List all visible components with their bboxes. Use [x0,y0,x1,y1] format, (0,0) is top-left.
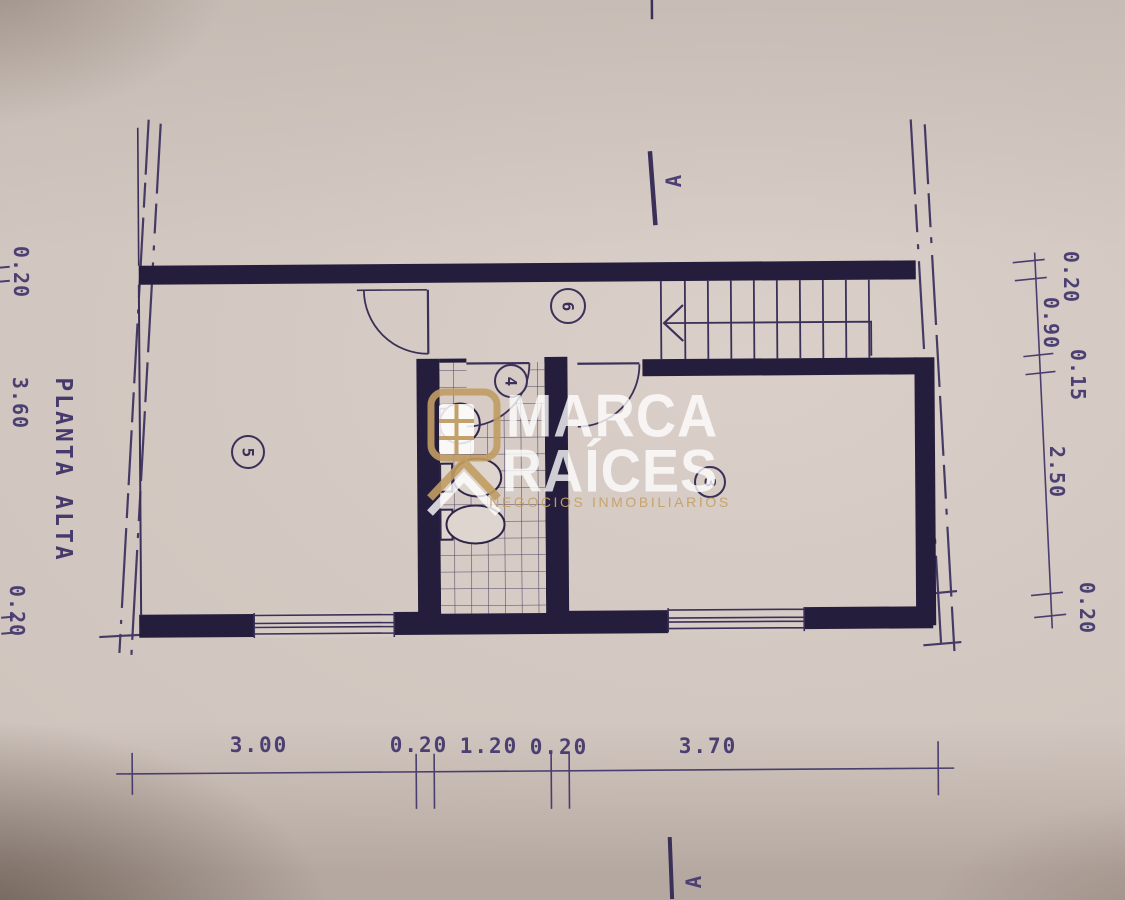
dim-bottom-5: 3.70 [679,734,738,758]
bathroom-right-wall [544,357,569,614]
staircase [661,280,872,359]
bottom-wall-right [804,606,933,629]
stair-bottom-wall [642,357,916,376]
room-label-6: 6 [550,288,586,324]
left-dimension-ticks [0,267,14,634]
right-wall [914,357,936,625]
floor-title: PLANTA ALTA [50,377,76,562]
room-label-3: 3 [694,466,726,498]
dim-bottom-3: 1.20 [460,734,519,758]
dim-left-middle: 3.60 [8,377,32,429]
floor-plan-scan: PLANTA ALTA 0.20 3.60 0.20 0.20 0.90 0.1… [0,0,1125,900]
bidet-tank [440,464,452,492]
dim-bottom-4: 0.20 [530,735,589,759]
sink-icon [440,403,480,443]
room-label-5: 5 [231,435,265,469]
scanned-floor-plan-page: { "plan": { "floor_title": "PLANTA ALTA"… [0,0,1125,900]
dim-bottom-2: 0.20 [390,733,449,757]
dim-right-2: 0.90 [1039,297,1063,349]
dim-left-bottom: 0.20 [5,585,29,637]
stair-direction-line [664,322,871,357]
door-room5 [357,290,428,354]
dim-right-1: 0.20 [1059,251,1083,303]
door-room3 [577,363,639,426]
dim-right-4: 2.50 [1045,446,1069,498]
left-party-wall-break-lines [96,120,165,655]
window-room5 [254,612,394,638]
floor-plan-drawing [0,0,1125,900]
bidet-icon [453,458,501,496]
toilet-icon [446,505,504,543]
dim-right-3: 0.15 [1066,349,1090,401]
section-line-marks [649,0,672,899]
bottom-wall-left [139,614,254,638]
dim-bottom-1: 3.00 [230,733,289,757]
left-wall-line [138,128,141,616]
section-marker-top: A [662,175,686,188]
bathroom-left-wall [416,359,441,615]
room-label-4: 4 [494,364,528,398]
dim-right-5: 0.20 [1075,582,1099,634]
dim-left-top: 0.20 [9,246,33,298]
window-room3 [668,607,804,632]
section-marker-bottom: A [682,876,706,889]
stair-risers [661,280,870,359]
bathroom [439,362,546,614]
